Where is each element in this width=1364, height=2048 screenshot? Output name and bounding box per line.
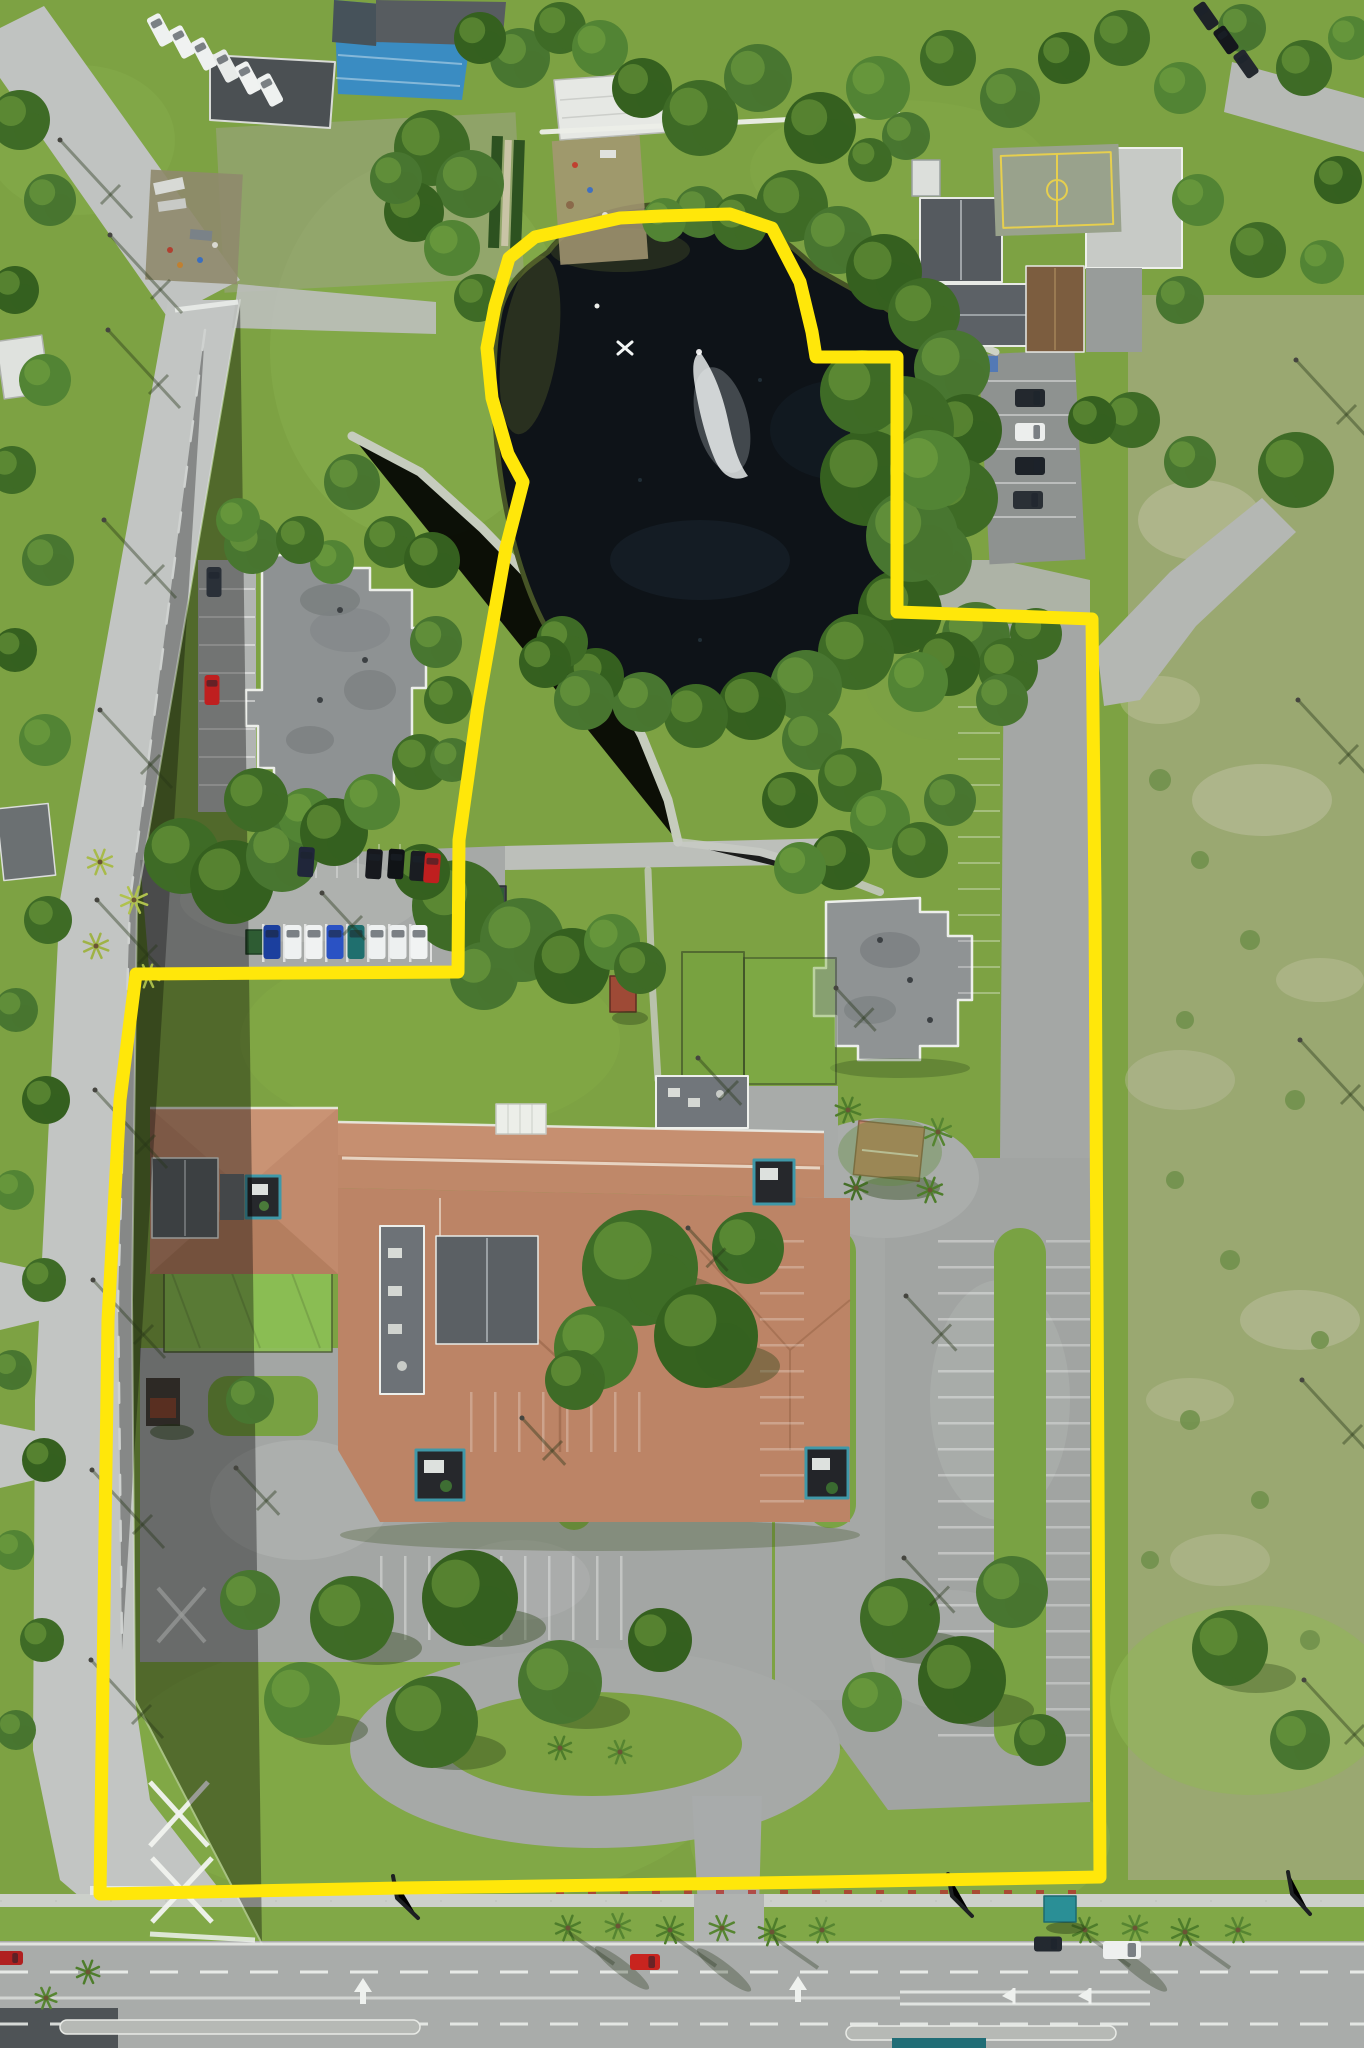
aerial-property-photo [0, 0, 1364, 2048]
aerial-photo-stage [0, 0, 1364, 2048]
